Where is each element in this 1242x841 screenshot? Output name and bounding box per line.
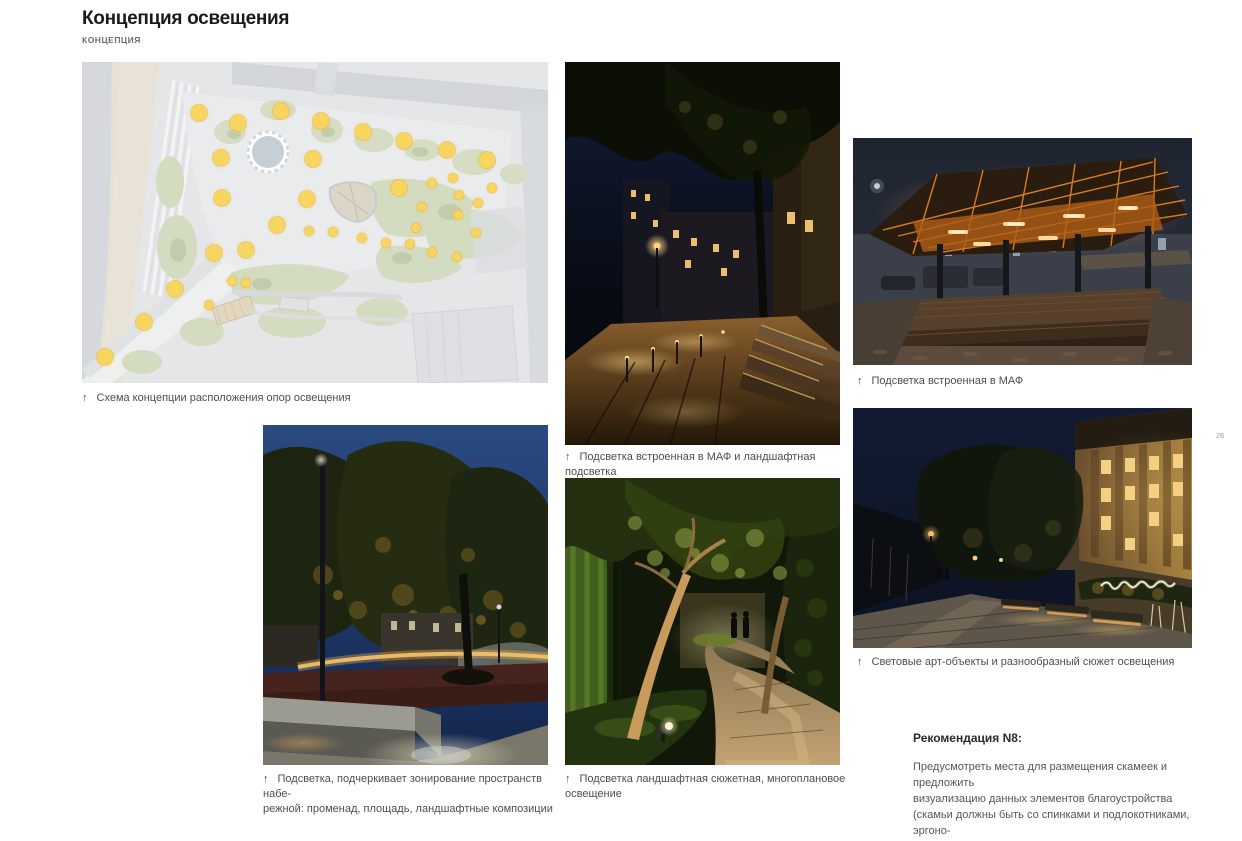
page-number: 26 [1216, 431, 1224, 440]
lighting-pole-dot [328, 227, 337, 236]
lighting-pole-dot [357, 233, 366, 242]
lighting-pole-dot [167, 281, 183, 297]
lighting-pole-dot [473, 199, 482, 208]
recommendation-block: Рекомендация N8: Предусмотреть места для… [913, 731, 1205, 841]
photo-caption: Подсветка встроенная в МАФ [872, 375, 1024, 387]
photo-caption-row: ↑Световые арт-объекты и разнообразный сю… [857, 655, 1187, 670]
lighting-pole-dot [452, 252, 461, 261]
photo-caption: Световые арт-объекты и разнообразный сюж… [872, 656, 1175, 668]
lighting-pole-dot [230, 115, 246, 131]
lighting-pole-dot [427, 179, 436, 188]
lighting-pole-dot [206, 245, 222, 261]
photo-landscape-scenic [565, 478, 840, 765]
site-plan-caption-row: ↑Схема концепции расположения опор освещ… [82, 391, 542, 406]
photo-caption-row: ↑Подсветка встроенная в МАФ [857, 374, 1187, 389]
up-arrow-icon: ↑ [857, 655, 863, 670]
photo-zoning-lighting [263, 425, 548, 765]
up-arrow-icon: ↑ [565, 772, 571, 787]
lighting-pole-dot [304, 226, 313, 235]
lighting-pole-dot [448, 173, 457, 182]
lighting-pole-dot [412, 223, 421, 232]
lighting-pole-dot [214, 190, 230, 206]
page: Концепция освещения КОНЦЕПЦИЯ [0, 0, 1242, 841]
site-plan-caption: Схема концепции расположения опор освеще… [97, 392, 351, 404]
lighting-pole-dot [136, 314, 152, 330]
lighting-pole-dot [313, 113, 329, 129]
photo-promenade-maf [565, 62, 840, 445]
lighting-pole-dot [213, 150, 229, 166]
photo-art-objects [853, 408, 1192, 648]
lighting-pole-dot [427, 247, 436, 256]
lighting-pole-dot [299, 191, 315, 207]
page-title: Концепция освещения [82, 8, 289, 30]
lighting-pole-dot [355, 124, 371, 140]
site-plan-dots [82, 62, 548, 383]
photo-caption-row: ↑Подсветка ландшафтная сюжетная, многопл… [565, 772, 855, 802]
lighting-pole-dot [97, 349, 113, 365]
lighting-pole-dot [204, 300, 213, 309]
up-arrow-icon: ↑ [857, 374, 863, 389]
photo-caption: Подсветка ландшафтная сюжетная, многопла… [565, 773, 845, 800]
lighting-pole-dot [453, 211, 462, 220]
lighting-pole-dot [227, 277, 236, 286]
lighting-pole-dot [454, 191, 463, 200]
lighting-pole-dot [396, 133, 412, 149]
lighting-pole-dot [418, 203, 427, 212]
lighting-pole-dot [273, 103, 289, 119]
lighting-pole-dot [391, 180, 407, 196]
lighting-pole-dot [269, 217, 285, 233]
recommendation-body: Предусмотреть места для размещения скаме… [913, 759, 1205, 841]
photo-caption: Подсветка встроенная в МАФ и ландшафтная… [565, 451, 815, 478]
lighting-pole-dot [487, 183, 496, 192]
lighting-pole-dot [439, 142, 455, 158]
lighting-pole-dot [382, 238, 391, 247]
photo-caption-row: ↑Подсветка встроенная в МАФ и ландшафтна… [565, 450, 855, 480]
up-arrow-icon: ↑ [565, 450, 571, 465]
site-plan-image [82, 62, 548, 383]
lighting-pole-dot [471, 228, 480, 237]
up-arrow-icon: ↑ [263, 772, 269, 787]
photo-caption: Подсветка, подчеркивает зонирование прос… [263, 773, 553, 815]
recommendation-title: Рекомендация N8: [913, 731, 1205, 745]
up-arrow-icon: ↑ [82, 391, 88, 406]
lighting-pole-dot [242, 279, 251, 288]
lighting-pole-dot [305, 151, 321, 167]
lighting-pole-dot [191, 105, 207, 121]
lighting-pole-dot [479, 152, 495, 168]
photo-caption-row: ↑Подсветка, подчеркивает зонирование про… [263, 772, 563, 817]
lighting-pole-dot [238, 242, 254, 258]
photo-pavilion-maf [853, 138, 1192, 365]
page-subtitle: КОНЦЕПЦИЯ [82, 35, 141, 45]
lighting-pole-dot [406, 239, 415, 248]
